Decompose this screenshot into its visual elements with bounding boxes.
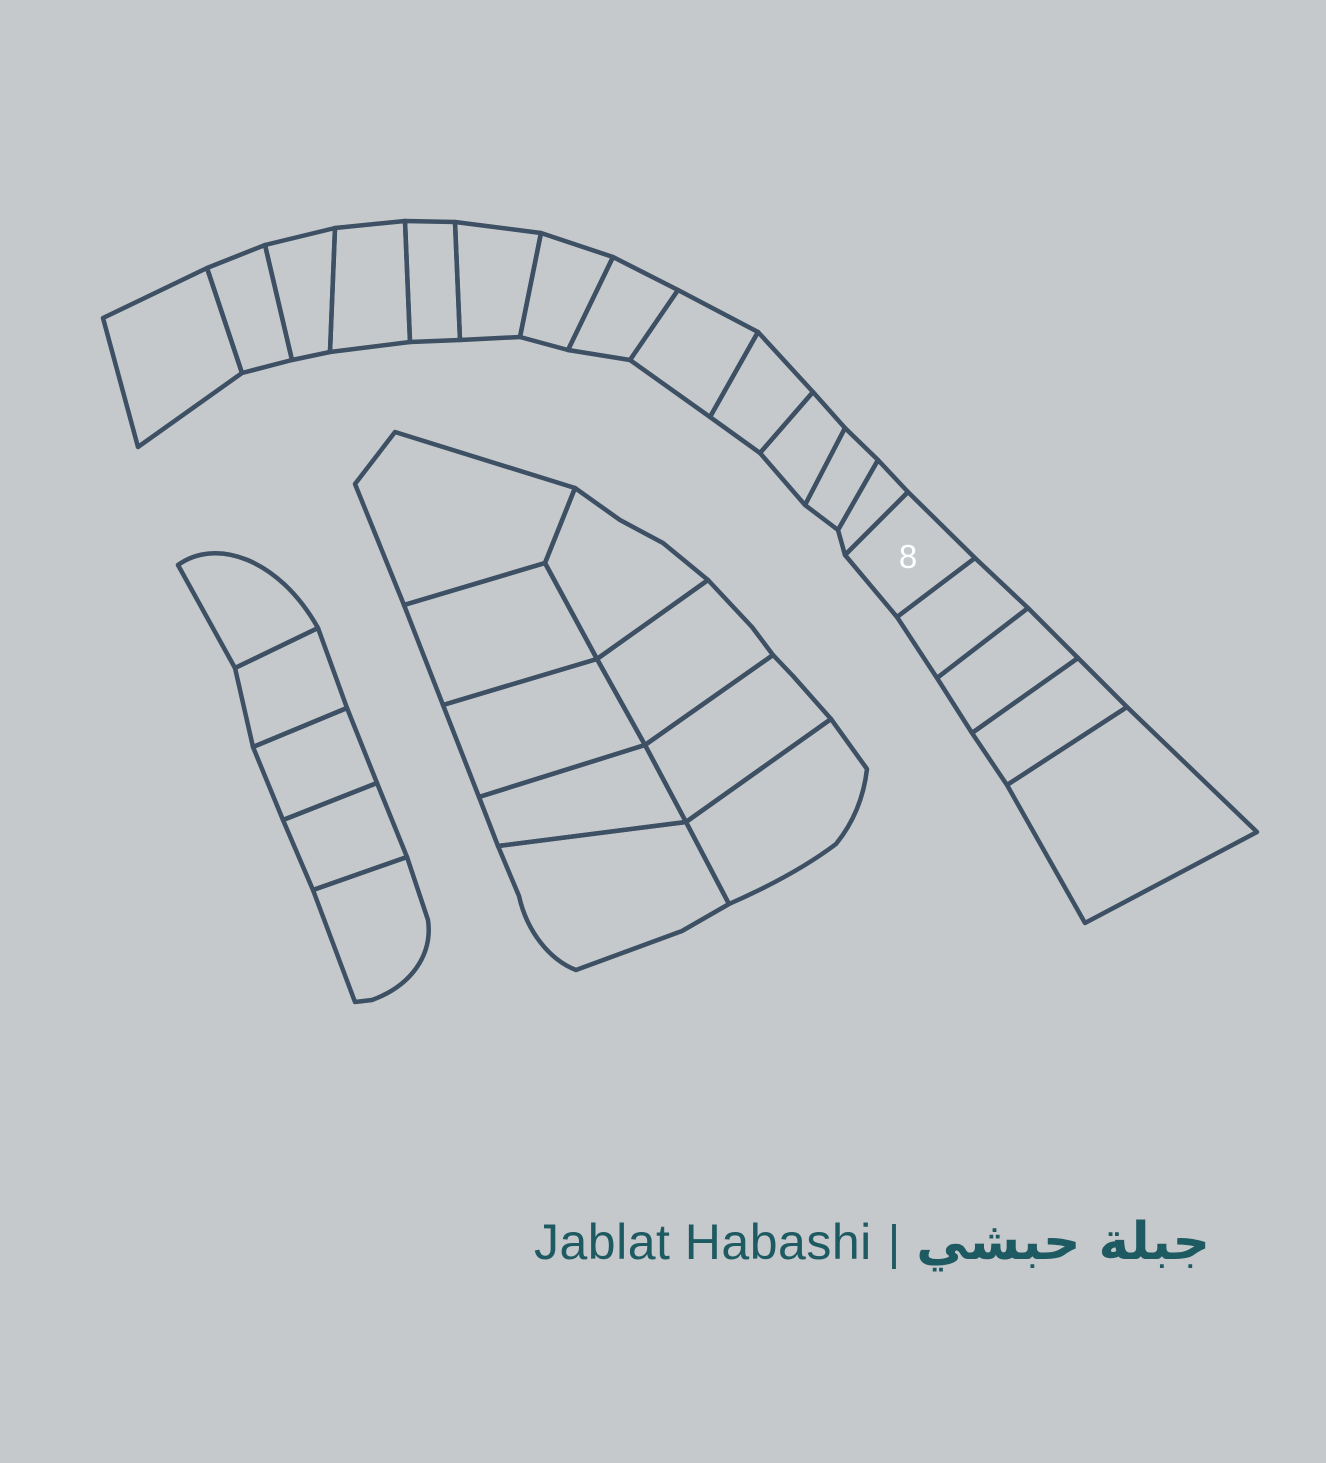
project-title-arabic: جبلة حبشي [916, 1212, 1210, 1272]
plot-8-label: 8 [899, 538, 917, 575]
project-title-latin: Jablat Habashi [534, 1213, 872, 1271]
title-separator: | [888, 1216, 900, 1271]
project-title: Jablat Habashi | جبلة حبشي [0, 1212, 1210, 1272]
